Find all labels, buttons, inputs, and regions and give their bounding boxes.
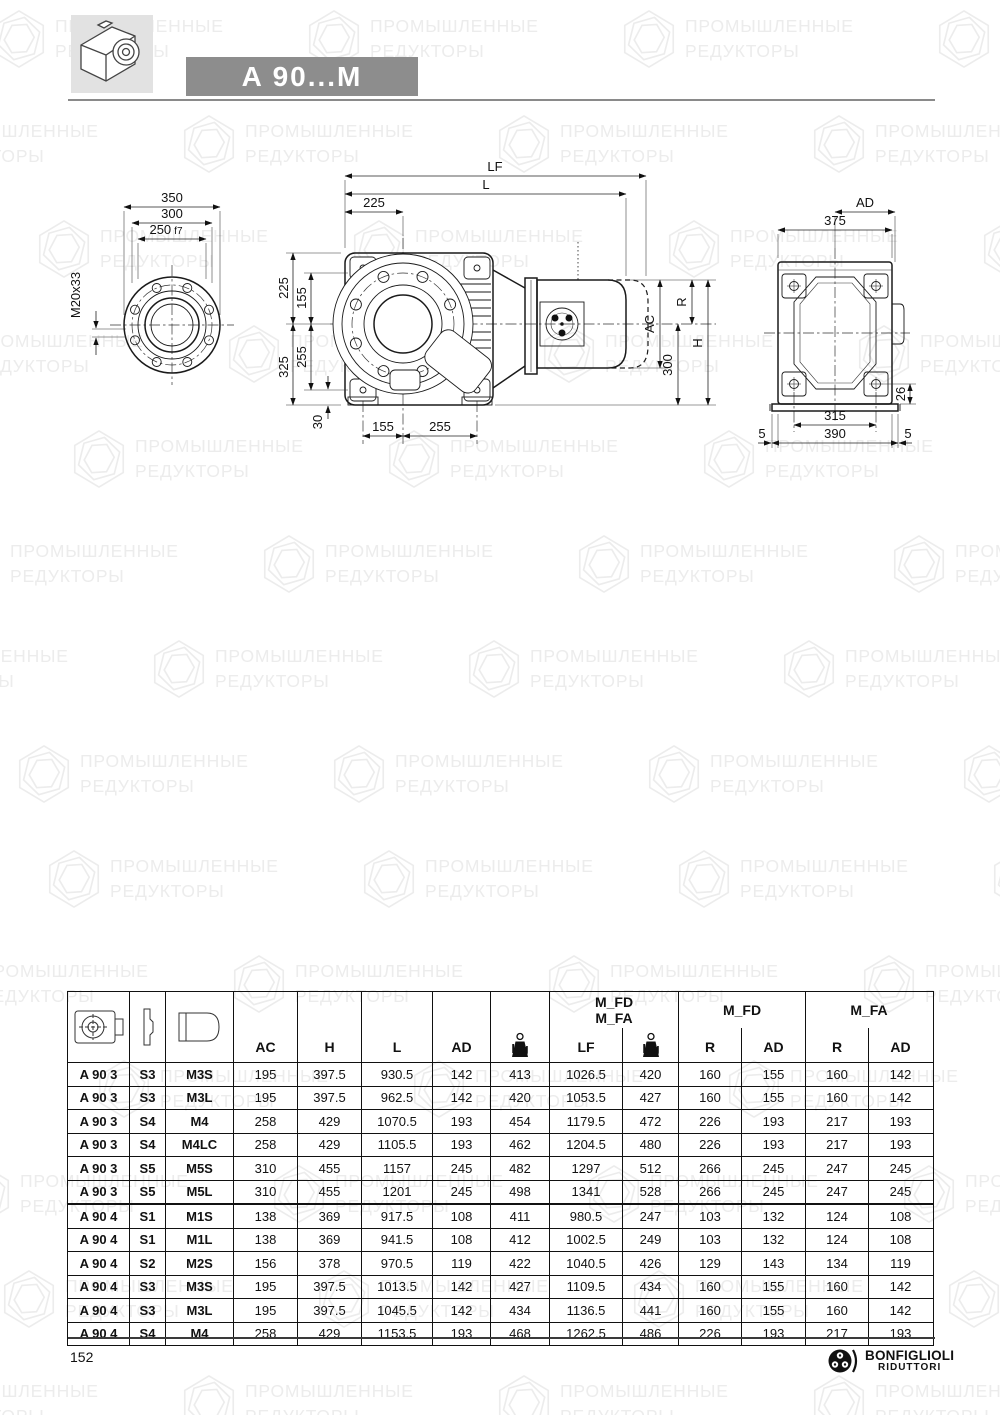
table-cell: 462 [491, 1134, 550, 1157]
table-cell: 195 [234, 1087, 298, 1110]
table-cell: 155 [742, 1299, 806, 1322]
dim-375: 375 [824, 213, 846, 228]
table-cell: 258 [234, 1110, 298, 1133]
table-cell: 245 [433, 1181, 491, 1204]
group-header-mfd: M_FD [679, 992, 806, 1028]
table-cell: 413 [491, 1063, 550, 1086]
table-cell: A 90 3 [68, 1087, 130, 1110]
col-header-lf: LF [550, 1028, 623, 1062]
table-cell: 455 [298, 1181, 362, 1204]
dim-h: H [690, 338, 705, 347]
table-row: A 90 4S3M3S195397.51013.51424271109.5434… [68, 1276, 933, 1300]
group-header-mfa: M_FA [806, 992, 932, 1028]
table-cell: M3S [166, 1063, 234, 1086]
table-cell: S5 [130, 1157, 166, 1180]
table-cell: 1179.5 [550, 1110, 623, 1133]
page-number: 152 [70, 1349, 93, 1365]
table-cell: 412 [491, 1229, 550, 1252]
table-cell: 310 [234, 1181, 298, 1204]
table-cell: 266 [679, 1157, 742, 1180]
table-cell: 155 [742, 1087, 806, 1110]
table-cell: A 90 4 [68, 1205, 130, 1228]
dim-255-bottom: 255 [429, 419, 451, 434]
table-cell: M5L [166, 1181, 234, 1204]
table-cell: 134 [806, 1252, 869, 1275]
table-cell: 441 [623, 1299, 679, 1322]
table-cell: 245 [742, 1181, 806, 1204]
table-cell: 962.5 [362, 1087, 433, 1110]
dim-325: 325 [278, 356, 291, 378]
table-cell: M1S [166, 1205, 234, 1228]
table-cell: 1109.5 [550, 1276, 623, 1299]
table-cell: 245 [742, 1157, 806, 1180]
table-cell: 1157 [362, 1157, 433, 1180]
dim-ad: AD [856, 195, 874, 210]
table-cell: 1262.5 [550, 1323, 623, 1346]
dim-lf: LF [487, 159, 502, 174]
table-cell: 266 [679, 1181, 742, 1204]
table-cell: 124 [806, 1205, 869, 1228]
table-cell: 397.5 [298, 1299, 362, 1322]
table-row: A 90 3S3M3L195397.5962.51424201053.54271… [68, 1087, 933, 1111]
weight-icon: Kg [491, 992, 550, 1062]
dim-5-right: 5 [904, 426, 911, 441]
table-cell: 480 [623, 1134, 679, 1157]
table-cell: 142 [869, 1063, 932, 1086]
col-header-ad: AD [433, 992, 491, 1062]
dimensions-table: AC H L AD Kg M_FD M_FA M_FD M_FA LF [67, 991, 934, 1346]
table-row: A 90 3S3M3S195397.5930.51424131026.54201… [68, 1063, 933, 1087]
dim-ac: AC [642, 315, 657, 333]
table-cell: 245 [433, 1157, 491, 1180]
table-cell: 108 [869, 1205, 932, 1228]
table-cell: 108 [433, 1205, 491, 1228]
table-cell: S5 [130, 1181, 166, 1204]
table-cell: A 90 3 [68, 1134, 130, 1157]
table-row: A 90 4S1M1S138369917.5108411980.52471031… [68, 1205, 933, 1229]
brand-subname: RIDUTTORI [878, 1363, 941, 1374]
table-cell: A 90 4 [68, 1252, 130, 1275]
table-cell: S4 [130, 1110, 166, 1133]
table-cell: 155 [742, 1276, 806, 1299]
table-cell: 980.5 [550, 1205, 623, 1228]
table-cell: 1040.5 [550, 1252, 623, 1275]
table-cell: S4 [130, 1134, 166, 1157]
table-cell: 193 [742, 1110, 806, 1133]
table-cell: 247 [623, 1205, 679, 1228]
dim-250f7: 250f7 [149, 222, 182, 237]
table-cell: 160 [806, 1087, 869, 1110]
table-cell: 397.5 [298, 1063, 362, 1086]
table-header: AC H L AD Kg M_FD M_FA M_FD M_FA LF [68, 992, 933, 1063]
dim-155-left: 155 [294, 287, 309, 309]
col-header-ac: AC [234, 992, 298, 1062]
table-cell: M2S [166, 1252, 234, 1275]
table-cell: 217 [806, 1134, 869, 1157]
table-cell: A 90 3 [68, 1063, 130, 1086]
dim-155-bottom: 155 [372, 419, 394, 434]
table-cell: 193 [869, 1134, 932, 1157]
table-cell: 1053.5 [550, 1087, 623, 1110]
table-cell: 193 [433, 1323, 491, 1346]
table-cell: S3 [130, 1299, 166, 1322]
table-cell: 1013.5 [362, 1276, 433, 1299]
table-cell: 193 [742, 1134, 806, 1157]
table-cell: 434 [623, 1276, 679, 1299]
side-view-drawing: LF L 225 225 155 255 325 30 155 255 AC 3… [278, 148, 723, 483]
table-row: A 90 4S4M42584291153.51934681262.5486226… [68, 1323, 933, 1346]
dim-5-left: 5 [758, 426, 765, 441]
dim-225-left: 225 [278, 277, 291, 299]
table-row: A 90 3S5M5L31045512012454981341528266245… [68, 1181, 933, 1206]
table-cell: 455 [298, 1157, 362, 1180]
table-cell: M5S [166, 1157, 234, 1180]
table-cell: 226 [679, 1134, 742, 1157]
table-cell: 486 [623, 1323, 679, 1346]
dim-300: 300 [660, 354, 675, 376]
col-header-ad2: AD [742, 1028, 806, 1062]
table-cell: 138 [234, 1205, 298, 1228]
table-cell: 142 [869, 1276, 932, 1299]
table-cell: A 90 3 [68, 1157, 130, 1180]
motor-icon [166, 992, 234, 1062]
table-cell: 132 [742, 1205, 806, 1228]
table-cell: A 90 4 [68, 1229, 130, 1252]
table-cell: S3 [130, 1276, 166, 1299]
table-cell: 411 [491, 1205, 550, 1228]
front-view-drawing: 350 300 250f7 M20x33 [62, 183, 272, 418]
table-cell: 160 [806, 1063, 869, 1086]
table-cell: 245 [869, 1157, 932, 1180]
table-cell: 160 [679, 1276, 742, 1299]
table-row: A 90 4S3M3L195397.51045.51424341136.5441… [68, 1299, 933, 1323]
table-cell: 434 [491, 1299, 550, 1322]
footer-rule [68, 1337, 935, 1339]
table-cell: 249 [623, 1229, 679, 1252]
dim-300: 300 [161, 206, 183, 221]
table-cell: 193 [869, 1110, 932, 1133]
bonfiglioli-logo-icon [826, 1344, 860, 1378]
dim-r: R [674, 297, 689, 306]
table-cell: 258 [234, 1323, 298, 1346]
table-cell: 528 [623, 1181, 679, 1204]
col-header-r: R [679, 1028, 742, 1062]
table-cell: 498 [491, 1181, 550, 1204]
table-cell: 124 [806, 1229, 869, 1252]
table-cell: M4 [166, 1110, 234, 1133]
table-cell: 1070.5 [362, 1110, 433, 1133]
table-cell: 247 [806, 1157, 869, 1180]
table-cell: 1297 [550, 1157, 623, 1180]
gearbox-photo-thumbnail [68, 12, 156, 96]
table-cell: 119 [869, 1252, 932, 1275]
weight-icon: Kg [623, 1028, 679, 1062]
table-cell: 1341 [550, 1181, 623, 1204]
table-cell: 397.5 [298, 1276, 362, 1299]
table-cell: 160 [679, 1063, 742, 1086]
table-cell: 245 [869, 1181, 932, 1204]
table-cell: M3L [166, 1299, 234, 1322]
table-cell: 143 [742, 1252, 806, 1275]
table-cell: S2 [130, 1252, 166, 1275]
table-cell: 472 [623, 1110, 679, 1133]
table-cell: 917.5 [362, 1205, 433, 1228]
page-title: A 90...M [242, 61, 363, 93]
table-cell: 193 [433, 1134, 491, 1157]
table-cell: 482 [491, 1157, 550, 1180]
table-cell: 468 [491, 1323, 550, 1346]
brand-logo: BONFIGLIOLI RIDUTTORI [826, 1344, 954, 1378]
table-cell: 1153.5 [362, 1323, 433, 1346]
dim-225-top: 225 [363, 195, 385, 210]
table-cell: S1 [130, 1229, 166, 1252]
table-cell: 1026.5 [550, 1063, 623, 1086]
table-body: A 90 3S3M3S195397.5930.51424131026.54201… [68, 1063, 933, 1345]
table-cell: 217 [806, 1110, 869, 1133]
table-cell: 420 [623, 1063, 679, 1086]
table-cell: 378 [298, 1252, 362, 1275]
gearbox-icon [68, 992, 130, 1062]
col-header-ad3: AD [869, 1028, 932, 1062]
table-cell: 258 [234, 1134, 298, 1157]
table-cell: 1136.5 [550, 1299, 623, 1322]
table-cell: 1204.5 [550, 1134, 623, 1157]
table-cell: 142 [869, 1087, 932, 1110]
table-cell: 193 [869, 1323, 932, 1346]
table-cell: 429 [298, 1323, 362, 1346]
table-cell: M3L [166, 1087, 234, 1110]
table-cell: 160 [679, 1299, 742, 1322]
table-cell: 310 [234, 1157, 298, 1180]
table-cell: 217 [806, 1323, 869, 1346]
table-cell: 1002.5 [550, 1229, 623, 1252]
table-row: A 90 4S2M2S156378970.51194221040.5426129… [68, 1252, 933, 1276]
table-cell: S1 [130, 1205, 166, 1228]
table-cell: 422 [491, 1252, 550, 1275]
table-cell: S3 [130, 1087, 166, 1110]
table-row: A 90 3S5M5S31045511572454821297512266245… [68, 1157, 933, 1181]
table-cell: 427 [491, 1276, 550, 1299]
table-cell: M4LC [166, 1134, 234, 1157]
table-cell: 226 [679, 1323, 742, 1346]
table-cell: 195 [234, 1063, 298, 1086]
table-cell: A 90 3 [68, 1110, 130, 1133]
table-cell: 941.5 [362, 1229, 433, 1252]
dim-30: 30 [310, 415, 325, 429]
dim-390: 390 [824, 426, 846, 441]
table-cell: 369 [298, 1205, 362, 1228]
table-row: A 90 4S1M1L138369941.51084121002.5249103… [68, 1229, 933, 1253]
group-header-mfd-mfa: M_FD M_FA [550, 992, 679, 1028]
dim-350: 350 [161, 190, 183, 205]
table-cell: S3 [130, 1063, 166, 1086]
table-cell: 427 [623, 1087, 679, 1110]
table-cell: A 90 4 [68, 1323, 130, 1346]
table-cell: 426 [623, 1252, 679, 1275]
table-cell: 160 [806, 1299, 869, 1322]
col-header-l: L [362, 992, 433, 1062]
table-cell: 369 [298, 1229, 362, 1252]
svg-text:Kg: Kg [642, 1041, 659, 1056]
table-cell: 247 [806, 1181, 869, 1204]
table-row: A 90 3S4M4LC2584291105.51934621204.54802… [68, 1134, 933, 1158]
table-cell: 142 [433, 1063, 491, 1086]
table-cell: A 90 4 [68, 1299, 130, 1322]
brand-name: BONFIGLIOLI [865, 1349, 954, 1363]
table-cell: 930.5 [362, 1063, 433, 1086]
header-rule [68, 99, 935, 101]
table-cell: 129 [679, 1252, 742, 1275]
table-cell: 195 [234, 1299, 298, 1322]
table-cell: 454 [491, 1110, 550, 1133]
page-title-banner: A 90...M [186, 57, 418, 96]
table-cell: 429 [298, 1134, 362, 1157]
table-cell: 108 [433, 1229, 491, 1252]
table-cell: A 90 3 [68, 1181, 130, 1204]
svg-text:Kg: Kg [511, 1041, 528, 1056]
table-cell: 512 [623, 1157, 679, 1180]
table-cell: M3S [166, 1276, 234, 1299]
table-cell: 193 [433, 1110, 491, 1133]
table-cell: 1045.5 [362, 1299, 433, 1322]
table-cell: 1201 [362, 1181, 433, 1204]
table-cell: 132 [742, 1229, 806, 1252]
table-cell: A 90 4 [68, 1276, 130, 1299]
table-cell: 429 [298, 1110, 362, 1133]
table-cell: 103 [679, 1229, 742, 1252]
table-cell: 155 [742, 1063, 806, 1086]
dim-l: L [482, 177, 489, 192]
table-cell: 142 [433, 1276, 491, 1299]
table-cell: 160 [679, 1087, 742, 1110]
table-cell: 103 [679, 1205, 742, 1228]
table-cell: M4 [166, 1323, 234, 1346]
dim-m20x33: M20x33 [68, 272, 83, 318]
table-cell: 420 [491, 1087, 550, 1110]
table-cell: 160 [806, 1276, 869, 1299]
table-cell: 195 [234, 1276, 298, 1299]
table-cell: 397.5 [298, 1087, 362, 1110]
dim-315: 315 [824, 408, 846, 423]
rear-view-drawing: AD 375 315 390 5 5 26 [738, 182, 993, 477]
dim-26: 26 [893, 387, 908, 401]
table-cell: 108 [869, 1229, 932, 1252]
dim-255-left: 255 [294, 346, 309, 368]
table-cell: S4 [130, 1323, 166, 1346]
table-cell: 970.5 [362, 1252, 433, 1275]
table-cell: 119 [433, 1252, 491, 1275]
col-header-r2: R [806, 1028, 869, 1062]
table-cell: 142 [869, 1299, 932, 1322]
table-cell: 1105.5 [362, 1134, 433, 1157]
table-row: A 90 3S4M42584291070.51934541179.5472226… [68, 1110, 933, 1134]
table-cell: 226 [679, 1110, 742, 1133]
table-cell: 142 [433, 1299, 491, 1322]
flange-icon [130, 992, 166, 1062]
table-cell: 142 [433, 1087, 491, 1110]
table-cell: 138 [234, 1229, 298, 1252]
table-cell: 156 [234, 1252, 298, 1275]
col-header-h: H [298, 992, 362, 1062]
table-cell: M1L [166, 1229, 234, 1252]
table-cell: 193 [742, 1323, 806, 1346]
